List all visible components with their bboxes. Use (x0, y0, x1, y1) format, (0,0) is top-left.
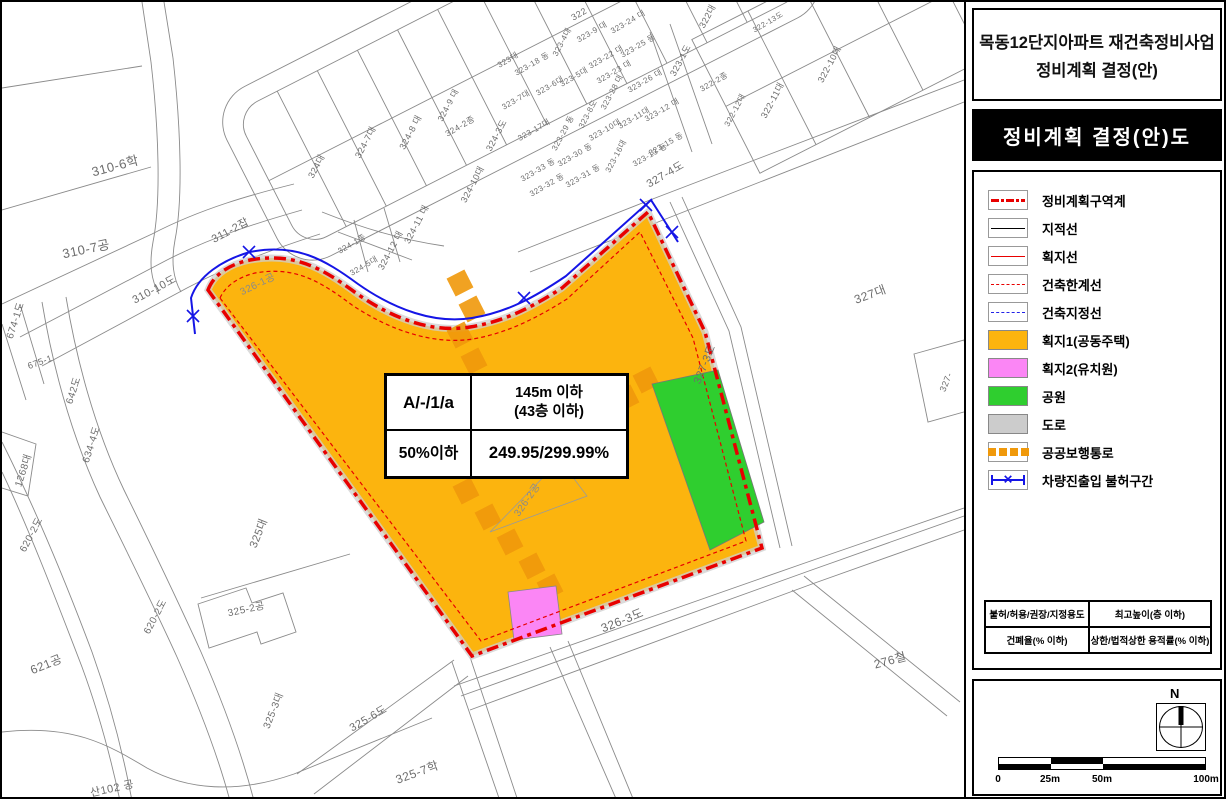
scale-north-box: N 0 25m 50m 100m (972, 679, 1222, 796)
zone-code-cell: A/-/1/a (386, 375, 471, 430)
scale-tick: 0 (995, 774, 1001, 785)
park-swatch (988, 386, 1028, 406)
sheet-title: 정비계획 결정(안)도 (1003, 121, 1191, 150)
plan-sheet: 310-6학310-7공311-2잡310-10도674-1도675-1642도… (0, 0, 1226, 799)
parcel1-swatch (988, 330, 1028, 350)
legend-item: 공공보행통로 (988, 438, 1220, 466)
coverage-key-cell: 건폐율(% 이하) (985, 627, 1089, 653)
legend-item: 획지2(유치원) (988, 354, 1220, 382)
coverage-cell: 50%이하 (386, 430, 471, 477)
map-area: 310-6학310-7공311-2잡310-10도674-1도675-1642도… (2, 2, 964, 797)
project-title-line2: 정비계획 결정(안) (1036, 57, 1158, 81)
parcel-line-swatch (988, 246, 1028, 266)
use-category-cell: 불허/허용/권장/지정용도 (985, 601, 1089, 627)
legend-item: ✕ 차량진출입 불허구간 (988, 466, 1220, 494)
legend-item: 획지선 (988, 242, 1220, 270)
legend-item: 획지1(공동주택) (988, 326, 1220, 354)
parcel2-swatch (988, 358, 1028, 378)
building-designation-swatch (988, 302, 1028, 322)
cadastral-line-swatch (988, 218, 1028, 238)
scale-tick: 25m (1040, 774, 1060, 785)
district-boundary-swatch (988, 190, 1028, 210)
scale-tick: 100m (1193, 774, 1219, 785)
legend-box: 정비계획구역계 지적선 획지선 건축한계선 건축지정선 획지1(공동주택) 획지… (972, 170, 1222, 670)
parcel2-area (508, 586, 562, 640)
sheet-title-box: 정비계획 결정(안)도 (972, 109, 1222, 161)
scale-bar (998, 757, 1206, 770)
floor-area-ratio-cell: 249.95/299.99% (471, 430, 627, 477)
no-vehicle-access-swatch: ✕ (988, 470, 1028, 490)
building-limit-swatch (988, 274, 1028, 294)
road-swatch (988, 414, 1028, 434)
max-height-cell: 최고높이(층 이하) (1089, 601, 1211, 627)
far-key-cell: 상한/법적상한 용적률(% 이하) (1089, 627, 1211, 653)
panel-divider (964, 2, 966, 799)
legend-item: 정비계획구역계 (988, 186, 1220, 214)
legend-key-table: 불허/허용/권장/지정용도 최고높이(층 이하) 건폐율(% 이하) 상한/법적… (984, 600, 1212, 654)
height-limit-cell: 145m 이하 (43층 이하) (471, 375, 627, 430)
walkway-swatch (988, 442, 1028, 462)
legend-item: 건축지정선 (988, 298, 1220, 326)
legend-item: 건축한계선 (988, 270, 1220, 298)
north-arrow-icon (1156, 703, 1206, 751)
legend-item: 공원 (988, 382, 1220, 410)
legend-item: 도로 (988, 410, 1220, 438)
project-title-line1: 목동12단지아파트 재건축정비사업 (979, 29, 1214, 53)
site-regulation-table: A/-/1/a 145m 이하 (43층 이하) 50%이하 249.95/29… (384, 373, 629, 479)
scale-tick: 50m (1092, 774, 1112, 785)
legend-item: 지적선 (988, 214, 1220, 242)
north-label: N (1170, 686, 1179, 701)
project-title-box: 목동12단지아파트 재건축정비사업 정비계획 결정(안) (972, 8, 1222, 101)
